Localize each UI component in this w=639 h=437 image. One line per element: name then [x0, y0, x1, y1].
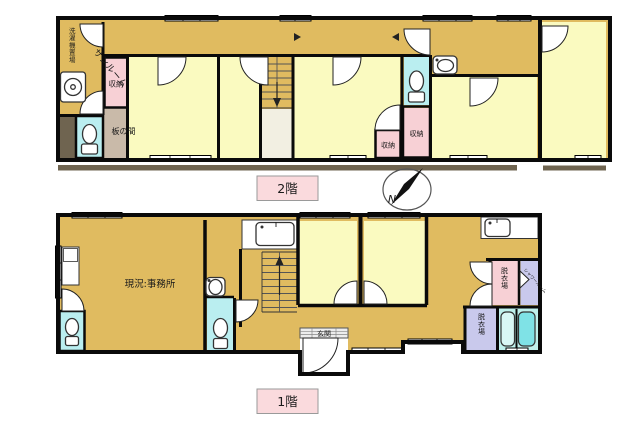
floor-2-tag: 2階 [257, 176, 318, 201]
floor-1-plan: 玄関 [56, 213, 548, 375]
entrance-vestibule: 玄関 [300, 328, 348, 374]
laundry-area-label: 洗濯機置場 [69, 26, 76, 64]
floor2-eave-right [543, 166, 606, 171]
floor2-balcony-bottom [58, 165, 517, 171]
toilet-mid-icon [409, 71, 425, 102]
office-cabinet-icon [62, 247, 79, 285]
mid-toilet-icon [214, 319, 228, 349]
toilet-left-icon [82, 125, 98, 155]
floor-plan-canvas: 洗濯機置場 サンルーム 収納 板の間 収納 収納 2階 N [0, 0, 639, 437]
compass-north-label: N [388, 193, 396, 206]
floor-2-plan: 洗濯機置場 サンルーム 収納 板の間 収納 収納 [58, 16, 610, 171]
office-label: 現況:事務所 [125, 278, 176, 290]
wash-area-icon [501, 312, 515, 346]
closet-right-label: 収納 [410, 129, 424, 138]
washbasin-2f-icon [433, 56, 457, 74]
washing-machine-icon [61, 72, 86, 102]
closet-left-label: 収納 [109, 79, 124, 89]
compass: N [383, 168, 431, 210]
kitchen-counter-left [242, 220, 298, 249]
itanoma-label: 板の間 [112, 126, 136, 136]
entrance-label: 玄関 [317, 329, 331, 338]
floor-1-tag: 1階 [257, 389, 318, 414]
closet-mid-label: 収納 [381, 141, 395, 150]
dressing-upper-label: 脱衣場 [501, 266, 508, 290]
sink-right-icon [485, 219, 510, 237]
dressing-lower-label: 脱衣場 [478, 312, 485, 336]
floor2-understairs [262, 109, 292, 158]
floor-1-tag-label: 1階 [277, 394, 298, 409]
washbasin-1f-icon [206, 278, 225, 297]
floor-2-tag-label: 2階 [277, 181, 298, 196]
kitchen-counter-right [481, 217, 538, 239]
bathtub-icon [519, 312, 536, 346]
office-toilet-icon [66, 319, 79, 346]
floor2-balcony-left [60, 117, 75, 158]
floor-plan-svg: 洗濯機置場 サンルーム 収納 板の間 収納 収納 2階 N [0, 0, 639, 437]
